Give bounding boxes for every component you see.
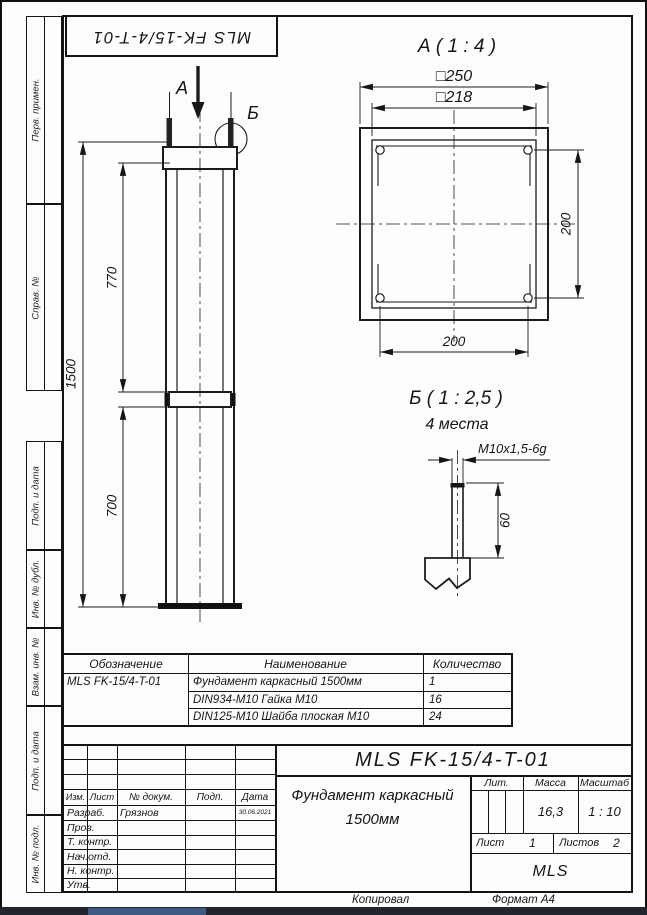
detail-a-view <box>336 82 584 357</box>
dim-text-770: 770 <box>105 266 120 289</box>
tb-row-label: Н. контр. <box>67 864 117 878</box>
extension-lines <box>360 82 584 357</box>
bottom-bar-accent <box>88 908 206 915</box>
margin-stamp-label: Справ. № <box>31 276 42 319</box>
grid-line <box>117 746 118 891</box>
title-block: Изм. Лист № докум. Подп. Дата Разраб. Гр… <box>62 744 633 893</box>
tb-sheet-label: Лист <box>476 833 516 853</box>
mid-plate-weld-left <box>165 393 169 406</box>
section-arrowhead <box>192 102 205 119</box>
divider <box>44 17 45 203</box>
margin-stamp-label: Подп. и дата <box>31 466 42 525</box>
dim-text-200-v: 200 <box>559 212 574 236</box>
tb-sheets-label: Листов <box>559 833 607 853</box>
detail-b-places: 4 места <box>425 416 488 433</box>
detail-b-view <box>425 450 550 600</box>
margin-stamp-podp-data-1: Подп. и дата <box>26 441 62 550</box>
grid-line <box>64 774 275 775</box>
detail-label-b: Б <box>247 103 259 123</box>
dim-text-218: □218 <box>436 89 472 106</box>
grid-line <box>505 790 506 833</box>
drawing-sheet: Перв. примен. Справ. № Подп. и дата Инв.… <box>0 0 647 915</box>
tb-row-label: Разраб. <box>67 805 117 820</box>
divider <box>44 629 45 705</box>
bolt-bottom-left <box>376 294 384 302</box>
plate-break <box>425 558 470 589</box>
tb-row-name: Грязнов <box>120 805 184 820</box>
dim-text-700: 700 <box>105 494 120 517</box>
grid-line <box>64 759 275 760</box>
tb-scale-label: Масштаб <box>578 775 631 790</box>
tb-mass-value: 16,3 <box>523 790 578 833</box>
parts-cell: 1 <box>429 673 509 691</box>
tb-col-podp: Подп. <box>185 789 235 805</box>
margin-stamp-vzam-inv: Взам. инв. № <box>26 628 62 706</box>
tb-row-label: Пров. <box>67 820 117 835</box>
grid-line <box>488 790 489 833</box>
parts-header-designation: Обозначение <box>64 655 188 673</box>
divider <box>44 205 45 390</box>
margin-stamp-podp-data-2: Подп. и дата <box>26 706 62 815</box>
format-label: Формат А4 <box>492 894 555 906</box>
stud-right <box>228 118 234 148</box>
extension-lines <box>78 142 170 607</box>
margin-stamp-label: Инв. № дубл. <box>31 560 42 618</box>
tb-row-date: 30.06.2021 <box>235 805 275 820</box>
dim-text-250: □250 <box>436 68 472 85</box>
margin-stamp-label: Перв. примен. <box>31 78 42 141</box>
margin-stamp-sprav-no: Справ. № <box>26 204 62 391</box>
tb-row-label: Утв. <box>67 878 117 891</box>
grid-line <box>185 746 186 891</box>
stud-left <box>167 118 173 148</box>
tb-lit-label: Лит. <box>470 775 523 790</box>
bolt-top-left <box>376 146 384 154</box>
parts-table: Обозначение Наименование Количество MLS … <box>62 653 513 727</box>
tb-col-list: Лист <box>87 789 117 805</box>
margin-stamp-label: Инв. № подл. <box>31 825 42 884</box>
dim-text-200-h: 200 <box>442 334 466 349</box>
tb-company: MLS <box>470 853 631 891</box>
bolt-bottom-right <box>524 294 532 302</box>
margin-stamp-inv-dubl: Инв. № дубл. <box>26 550 62 628</box>
tb-title-line2: 1500мм <box>275 808 470 830</box>
parts-cell: Фундамент каркасный 1500мм <box>193 673 421 691</box>
tb-col-docnum: № докум. <box>117 789 185 805</box>
parts-cell: 24 <box>429 708 509 725</box>
thread-callout: M10x1,5-6g <box>478 441 547 456</box>
tb-col-izm: Изм. <box>64 789 87 805</box>
bolt-top-right <box>524 146 532 154</box>
drawing-views: А Б 1500 770 700 <box>62 15 633 740</box>
copied-label: Копировал <box>352 894 409 906</box>
tb-col-data: Дата <box>235 789 275 805</box>
parts-header-name: Наименование <box>188 655 423 673</box>
tb-sheet-value: 1 <box>514 833 551 853</box>
tb-row-label: Т. контр. <box>67 835 117 849</box>
grid-line <box>553 833 554 853</box>
tb-mass-label: Масса <box>523 775 578 790</box>
tb-designation: MLS FK-15/4-T-01 <box>275 746 631 775</box>
main-view <box>78 66 247 622</box>
detail-b-title: Б ( 1 : 2,5 ) <box>409 388 503 409</box>
parts-cell: DIN125-M10 Шайба плоская М10 <box>193 708 421 725</box>
tb-title-line1: Фундамент каркасный <box>275 784 470 806</box>
divider <box>44 707 45 814</box>
divider <box>44 816 45 892</box>
divider <box>44 551 45 627</box>
dim-text-60: 60 <box>498 513 513 529</box>
margin-stamp-inv-podl: Инв. № подл. <box>26 815 62 893</box>
margin-stamp-perv-primen: Перв. примен. <box>26 16 62 204</box>
dim-text-1500: 1500 <box>64 358 79 389</box>
mid-plate-weld-right <box>232 393 236 406</box>
tb-scale-value: 1 : 10 <box>578 790 631 833</box>
parts-cell: 16 <box>429 691 509 708</box>
detail-a-title: А ( 1 : 4 ) <box>417 36 496 57</box>
parts-cell: MLS FK-15/4-T-01 <box>67 673 187 691</box>
margin-stamp-label: Взам. инв. № <box>31 638 42 697</box>
parts-cell: DIN934-M10 Гайка М10 <box>193 691 421 708</box>
tb-row-label: Нач.отд. <box>67 849 117 864</box>
parts-header-qty: Количество <box>423 655 511 673</box>
divider <box>44 442 45 549</box>
tb-sheets-value: 2 <box>604 833 629 853</box>
section-label-a: А <box>175 78 188 98</box>
margin-stamp-label: Подп. и дата <box>31 731 42 790</box>
